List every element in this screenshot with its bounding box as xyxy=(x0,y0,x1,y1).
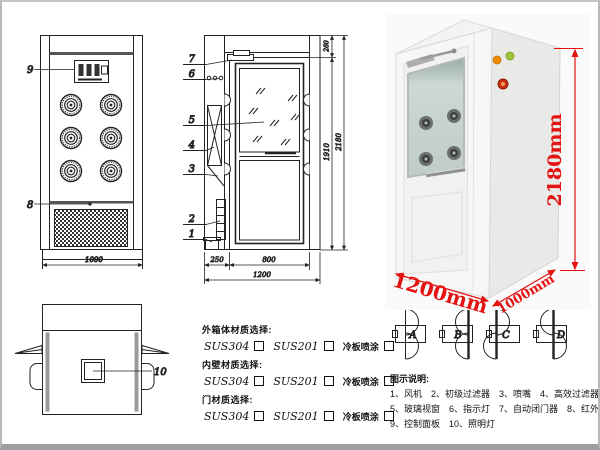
front-width-dim: 1000 xyxy=(85,256,103,264)
door-option-b[interactable]: B xyxy=(440,309,473,359)
product-photo: 2180mm 1200mm 1000mm xyxy=(385,14,591,318)
callout-8: 8 xyxy=(27,200,33,211)
door-material-label: 门材质选择: xyxy=(202,393,386,406)
indicator-light-green xyxy=(506,52,514,60)
photo-height-dim: 2180mm xyxy=(544,113,566,206)
door-option-b-label: B xyxy=(453,330,461,341)
door-sus201-checkbox[interactable] xyxy=(324,411,334,421)
callout-3: 3 xyxy=(189,164,195,175)
material-selection-form: 外箱体材质选择: SUS304SUS201冷板喷涂 内壁材质选择: SUS304… xyxy=(202,318,386,425)
door-drawing xyxy=(228,51,310,250)
legend-line-3: 9、控制面板 10、照明灯 xyxy=(390,417,596,432)
callout-7: 7 xyxy=(189,54,196,65)
side-view-callouts: 7 6 5 4 3 2 1 xyxy=(183,54,264,242)
legend-line-2: 5、玻璃视窗 6、指示灯 7、自动闭门器 8、红外线感应器 xyxy=(390,402,596,417)
outer-material-options: SUS304SUS201冷板喷涂 xyxy=(204,340,386,353)
dim-total-height-2180: 2180 xyxy=(335,133,343,152)
right-wing-bracket xyxy=(142,346,169,354)
callout-6: 6 xyxy=(189,69,196,80)
dim-door-width-800: 800 xyxy=(262,256,276,264)
emergency-button-center xyxy=(501,82,505,86)
door-material-options: SUS304SUS201冷板喷涂 xyxy=(204,410,386,423)
legend-block: 图示说明: 1、风机 2、初级过滤器 3、喷嘴 4、高效过滤器 5、玻璃视窗 6… xyxy=(390,372,596,432)
side-view-drawing: 7 6 5 4 3 2 1 260 1910 2180 xyxy=(183,36,348,285)
door-option-c-label: C xyxy=(502,330,510,341)
fan-filter-section xyxy=(204,76,226,249)
air-shower-spec-sheet: 9 8 1000 xyxy=(0,0,600,450)
dim-side-250: 250 xyxy=(209,256,224,264)
height-dimensions: 260 1910 2180 xyxy=(310,36,349,251)
inner-material-options: SUS304SUS201冷板喷涂 xyxy=(204,375,386,388)
left-wing-bracket xyxy=(15,346,42,354)
inner-coldplate-label: 冷板喷涂 xyxy=(343,377,379,387)
right-handle-drawing xyxy=(142,364,154,390)
outer-sus304-label: SUS304 xyxy=(204,340,249,353)
legend-title: 图示说明: xyxy=(390,372,596,387)
front-top-band xyxy=(50,52,134,55)
callout-2: 2 xyxy=(188,214,195,225)
callout-10: 10 xyxy=(154,367,167,378)
return-air-grille xyxy=(55,210,128,247)
dim-total-width-1200: 1200 xyxy=(253,271,271,279)
callout-4: 4 xyxy=(188,140,195,151)
outer-coldplate-checkbox[interactable] xyxy=(384,341,394,351)
width-dimensions: 250 800 1200 xyxy=(205,252,321,284)
door-option-a-label: A xyxy=(408,330,416,341)
callout-1: 1 xyxy=(189,229,195,240)
door-sus201-label: SUS201 xyxy=(273,410,318,423)
left-handle-drawing xyxy=(30,364,42,390)
callout-9: 9 xyxy=(27,65,34,76)
top-view-drawing: 10 xyxy=(15,305,169,415)
dim-door-height-1910: 1910 xyxy=(323,143,331,161)
control-panel-drawing xyxy=(75,61,109,83)
indicator-light-orange xyxy=(493,56,501,64)
outer-sus201-label: SUS201 xyxy=(273,340,318,353)
door-sus304-label: SUS304 xyxy=(204,410,249,423)
outer-sus201-checkbox[interactable] xyxy=(324,341,334,351)
wall-nozzles-drawing xyxy=(225,94,310,175)
front-view-drawing: 9 8 1000 xyxy=(27,36,143,270)
inner-sus201-checkbox[interactable] xyxy=(324,376,334,386)
outer-sus304-checkbox[interactable] xyxy=(254,341,264,351)
callout-5: 5 xyxy=(189,115,195,126)
door-option-a[interactable]: A xyxy=(393,309,426,359)
door-sus304-checkbox[interactable] xyxy=(254,411,264,421)
inner-sus304-checkbox[interactable] xyxy=(254,376,264,386)
outer-material-label: 外箱体材质选择: xyxy=(202,323,386,336)
inner-sus201-label: SUS201 xyxy=(273,375,318,388)
outer-coldplate-label: 冷板喷涂 xyxy=(343,342,379,352)
glass-hatch-marks xyxy=(249,88,300,145)
dim-top-260: 260 xyxy=(324,40,331,53)
door-coldplate-label: 冷板喷涂 xyxy=(343,412,379,422)
legend-line-1: 1、风机 2、初级过滤器 3、喷嘴 4、高效过滤器 xyxy=(390,387,596,402)
door-glass-window xyxy=(240,69,300,153)
door-option-d[interactable]: D xyxy=(534,309,567,359)
inner-sus304-label: SUS304 xyxy=(204,375,249,388)
inner-material-label: 内壁材质选择: xyxy=(202,358,386,371)
door-option-d-label: D xyxy=(556,330,565,341)
